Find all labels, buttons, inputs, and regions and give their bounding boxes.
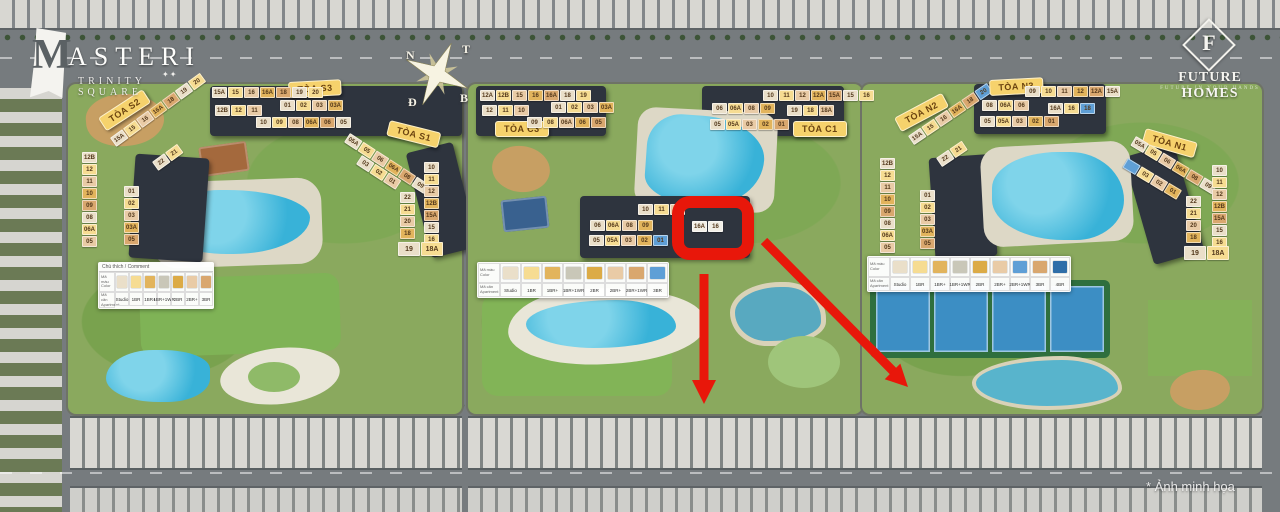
legend-swatch xyxy=(913,261,928,274)
unit-tile: 09 xyxy=(1025,86,1040,97)
unit-tile-group: 01020303A05 xyxy=(920,190,935,249)
unit-tile: 08 xyxy=(622,220,637,231)
unit-tile: 03 xyxy=(312,100,327,111)
unit-tile: 11 xyxy=(779,90,794,101)
unit-tile-group: 12B121110090806A05 xyxy=(880,158,895,253)
legend-label: 3BR xyxy=(199,292,213,306)
unit-tile: 06A xyxy=(606,220,621,231)
unit-tile-group: 16A1618 xyxy=(1048,103,1095,114)
unit-tile: 06 xyxy=(590,220,605,231)
unit-tile: 03A xyxy=(599,102,614,113)
unit-tile: 18 xyxy=(1186,232,1201,243)
unit-tile: 15A xyxy=(1105,86,1120,97)
unit-tile: 18A xyxy=(1207,246,1229,260)
unit-tile: 15 xyxy=(1212,225,1227,236)
legend-label: 2BR+ xyxy=(990,277,1010,291)
legend-label: 3BR xyxy=(647,283,668,297)
compass-label: B xyxy=(460,91,468,106)
unit-tile: 06 xyxy=(712,103,727,114)
legend-row-header-apartment: Mã căn Apartment xyxy=(99,292,115,308)
unit-tile: 19 xyxy=(398,242,420,256)
unit-tile: 01 xyxy=(1044,116,1059,127)
unit-tile: 12B xyxy=(215,105,230,116)
unit-tile: 18 xyxy=(400,228,415,239)
legend-swatch-cell xyxy=(185,272,199,292)
unit-tile: 19 xyxy=(292,87,307,98)
legend-label: 2BR+1WR xyxy=(626,283,647,297)
unit-tile: 12A xyxy=(480,90,495,101)
unit-tile-group: 0505A030201 xyxy=(589,235,668,246)
unit-tile: 12 xyxy=(1073,86,1088,97)
unit-tile: 15A xyxy=(1212,213,1227,224)
unit-tile: 11 xyxy=(424,174,439,185)
unit-tile: 06A xyxy=(559,117,574,128)
legend-swatch xyxy=(503,267,519,280)
unit-tile: 01 xyxy=(920,190,935,201)
legend-grid: Mã màu ColorMã căn ApartmentStudio1BR1BR… xyxy=(868,257,1070,291)
unit-tile: 01 xyxy=(653,235,668,246)
unit-tile: 18A xyxy=(819,105,834,116)
legend-swatch xyxy=(1013,261,1028,274)
legend-label: 1BR+ xyxy=(542,283,563,297)
unit-tile-group: 10111212A15A1516 xyxy=(763,90,874,101)
legend-swatch xyxy=(893,261,908,274)
building-label-c1: TÒA C1 xyxy=(793,121,847,137)
unit-tile: 09 xyxy=(272,117,287,128)
unit-tile: 20 xyxy=(1186,220,1201,231)
legend-row-header-color: Mã màu Color xyxy=(478,263,500,283)
unit-tile: 03 xyxy=(920,214,935,225)
unit-tile-group: 16A16 xyxy=(692,221,723,232)
unit-tile: 10 xyxy=(638,204,653,215)
unit-tile: 01 xyxy=(280,100,295,111)
unit-tile: 18 xyxy=(560,90,575,101)
unit-tile: 10 xyxy=(880,194,895,205)
unit-tile-group: 01020303A xyxy=(551,102,614,113)
unit-tile: 10 xyxy=(424,162,439,173)
unit-tile: 11 xyxy=(498,105,513,116)
legend-label: Studio xyxy=(890,277,910,291)
unit-tile-group: 10111212B15A1516 xyxy=(424,162,439,245)
unit-tile: 09 xyxy=(638,220,653,231)
legend-label: 3BR xyxy=(1030,277,1050,291)
legend-label: 1BR+1WR xyxy=(157,292,171,306)
legend-title: Chú thích / Comment xyxy=(99,263,213,272)
legend-swatch xyxy=(201,276,211,289)
unit-tile: 12 xyxy=(482,105,497,116)
legend-swatch xyxy=(608,267,624,280)
unit-tile: 15 xyxy=(228,87,243,98)
unit-tile: 15 xyxy=(843,90,858,101)
unit-tile: 09 xyxy=(880,206,895,217)
unit-tile: 09 xyxy=(82,200,97,211)
unit-tile-group: 0910111212A15A xyxy=(1025,86,1120,97)
site-plan: TÒA S215A151616A181920222112B12111009080… xyxy=(0,0,1280,512)
legend-swatch-cell xyxy=(950,257,970,277)
unit-tile: 19 xyxy=(576,90,591,101)
unit-tile: 05 xyxy=(880,242,895,253)
unit-tile: 03 xyxy=(1012,116,1027,127)
legend-swatch-cell xyxy=(626,263,647,283)
unit-tile: 12 xyxy=(670,204,685,215)
unit-tile: 19 xyxy=(787,105,802,116)
legend-swatch xyxy=(545,267,561,280)
watermark-text: * Ảnh minh họa xyxy=(1146,479,1235,494)
unit-tile-group: 0505A030201 xyxy=(980,116,1059,127)
unit-tile: 18 xyxy=(803,105,818,116)
legend-label: 4BR xyxy=(1050,277,1070,291)
unit-tile-group: 10090806A0605 xyxy=(256,117,351,128)
unit-tile: 12A xyxy=(811,90,826,101)
legend-swatch xyxy=(173,276,183,289)
unit-tile: 08 xyxy=(982,100,997,111)
unit-tile-group: 0606A0809 xyxy=(712,103,775,114)
unit-tile: 21 xyxy=(1186,208,1201,219)
unit-tile-group: 22212018 xyxy=(1186,196,1201,243)
unit-tile: 05A xyxy=(605,235,620,246)
legend-swatch-cell xyxy=(542,263,563,283)
unit-tile: 15A xyxy=(424,210,439,221)
unit-tile: 19 xyxy=(1184,246,1206,260)
unit-tile: 16 xyxy=(244,87,259,98)
unit-tile: 16A xyxy=(692,221,707,232)
unit-tile-group: 0505A030201 xyxy=(710,119,789,130)
unit-tile: 02 xyxy=(1028,116,1043,127)
legend-swatch-cell xyxy=(1030,257,1050,277)
unit-tile: 11 xyxy=(82,176,97,187)
unit-tile: 06A xyxy=(304,117,319,128)
unit-tile: 15 xyxy=(512,90,527,101)
unit-tile: 09 xyxy=(760,103,775,114)
unit-tile: 01 xyxy=(551,102,566,113)
unit-tile-group: 22212018 xyxy=(400,192,415,239)
legend-swatch-cell xyxy=(199,272,213,292)
unit-tile: 06A xyxy=(998,100,1013,111)
legend-label: 1BR xyxy=(521,283,542,297)
unit-tile: 05 xyxy=(589,235,604,246)
unit-tile: 12 xyxy=(795,90,810,101)
legend-row-header-apartment: Mã căn Apartment xyxy=(478,283,500,297)
unit-tile: 03A xyxy=(920,226,935,237)
unit-tile-group: 12A12B151616A1819 xyxy=(480,90,591,101)
legend-label: Studio xyxy=(115,292,129,306)
unit-tile: 16 xyxy=(528,90,543,101)
legend-label: 2BR+ xyxy=(185,292,199,306)
legend-swatch xyxy=(566,267,582,280)
legend-swatch xyxy=(1053,261,1068,274)
unit-tile-group: 2221 xyxy=(936,141,968,167)
unit-tile: 10 xyxy=(514,105,529,116)
legend-swatch xyxy=(187,276,197,289)
unit-tile: 16 xyxy=(859,90,874,101)
legend-label: 1BR xyxy=(129,292,143,306)
legend-swatch xyxy=(1033,261,1048,274)
compass-label: Đ xyxy=(408,95,417,110)
masteri-wordmark: ASTERI xyxy=(68,42,201,72)
unit-tile: 08 xyxy=(543,117,558,128)
masteri-logo: M ASTERI TRINITY SQUARE ✦✦ xyxy=(30,26,190,104)
unit-tile-group: 1918A xyxy=(398,242,443,256)
legend-swatch-cell xyxy=(930,257,950,277)
unit-tile: 03 xyxy=(621,235,636,246)
unit-tile: 16A xyxy=(260,87,275,98)
legend-swatch-cell xyxy=(157,272,171,292)
legend-swatch-cell xyxy=(890,257,910,277)
unit-tile: 16A xyxy=(1048,103,1063,114)
legend-swatch xyxy=(131,276,141,289)
unit-tile-group: 090806A0605 xyxy=(527,117,606,128)
legend-row-header-color: Mã màu Color xyxy=(868,257,890,277)
unit-tile: 15 xyxy=(424,222,439,233)
unit-tile: 15A xyxy=(827,90,842,101)
unit-tile: 02 xyxy=(637,235,652,246)
unit-tile: 05 xyxy=(920,238,935,249)
unit-tile: 22 xyxy=(1186,196,1201,207)
legend-swatch-cell xyxy=(1050,257,1070,277)
unit-tile: 03A xyxy=(328,100,343,111)
future-homes-logo: F FUTURE HOMES FUTURE IN YOUR HANDS xyxy=(1152,26,1268,96)
unit-tile: 02 xyxy=(124,198,139,209)
unit-tile: 02 xyxy=(920,202,935,213)
legend-right: Mã màu ColorMã căn ApartmentStudio1BR1BR… xyxy=(867,256,1071,292)
unit-tile-group: 1918A xyxy=(1184,246,1229,260)
unit-tile: 08 xyxy=(82,212,97,223)
unit-tile: 05 xyxy=(710,119,725,130)
legend-swatch-cell xyxy=(910,257,930,277)
unit-tile: 21 xyxy=(400,204,415,215)
unit-tile: 08 xyxy=(744,103,759,114)
unit-tile: 18 xyxy=(1080,103,1095,114)
unit-tile-group: 191818A xyxy=(787,105,834,116)
legend-label: 1BR+1WR xyxy=(950,277,970,291)
unit-tile: 03 xyxy=(583,102,598,113)
compass-label: T xyxy=(462,42,470,57)
unit-tile: 16A xyxy=(544,90,559,101)
unit-tile: 02 xyxy=(758,119,773,130)
masteri-initial: M xyxy=(32,34,72,76)
unit-tile: 03 xyxy=(742,119,757,130)
legend-swatch xyxy=(973,261,988,274)
compass-label: N xyxy=(406,48,415,63)
unit-tile: 02 xyxy=(296,100,311,111)
legend-label: 2BR+1WR xyxy=(1010,277,1030,291)
unit-tile: 22 xyxy=(400,192,415,203)
unit-tile: 05A xyxy=(996,116,1011,127)
legend-label: 2BR+ xyxy=(605,283,626,297)
buildings-layer: TÒA S215A151616A181920222112B12111009080… xyxy=(0,0,1280,512)
unit-tile: 01 xyxy=(1163,183,1182,200)
unit-tile: 08 xyxy=(288,117,303,128)
legend-swatch-cell xyxy=(521,263,542,283)
unit-tile: 05 xyxy=(591,117,606,128)
unit-tile-group: 01020303A xyxy=(280,100,343,111)
unit-tile: 12B xyxy=(1212,201,1227,212)
unit-tile: 12B xyxy=(82,152,97,163)
unit-tile-group: 12B121110090806A05 xyxy=(82,152,97,247)
unit-tile-group: 01020303A05 xyxy=(124,186,139,245)
future-homes-monogram: F xyxy=(1190,30,1228,56)
legend-swatch-cell xyxy=(563,263,584,283)
legend-label: 1BR xyxy=(910,277,930,291)
unit-tile-group: 15A151616A181920 xyxy=(212,87,323,98)
unit-tile: 10 xyxy=(256,117,271,128)
unit-tile: 01 xyxy=(774,119,789,130)
legend-swatch-cell xyxy=(115,272,129,292)
unit-tile: 02 xyxy=(567,102,582,113)
masteri-subtitle: TRINITY SQUARE xyxy=(78,76,190,98)
legend-swatch-cell xyxy=(143,272,157,292)
unit-tile: 03A xyxy=(124,222,139,233)
unit-tile: 12A xyxy=(1089,86,1104,97)
legend-swatch xyxy=(629,267,645,280)
unit-tile: 12B xyxy=(424,198,439,209)
unit-tile: 08 xyxy=(880,218,895,229)
unit-tile-group: 0606A0809 xyxy=(590,220,653,231)
unit-tile: 12B xyxy=(880,158,895,169)
unit-tile: 12 xyxy=(880,170,895,181)
unit-tile: 10 xyxy=(1041,86,1056,97)
legend-swatch-cell xyxy=(605,263,626,283)
legend-grid: Mã màu ColorMã căn ApartmentStudio1BR1BR… xyxy=(478,263,668,297)
unit-tile-group: 121110 xyxy=(482,105,529,116)
legend-swatch xyxy=(524,267,540,280)
legend-swatch xyxy=(587,267,603,280)
legend-row-header-apartment: Mã căn Apartment xyxy=(868,277,890,291)
unit-tile: 12 xyxy=(1212,189,1227,200)
unit-tile: 06A xyxy=(728,103,743,114)
legend-swatch-cell xyxy=(990,257,1010,277)
unit-tile: 05A xyxy=(726,119,741,130)
legend-swatch-cell xyxy=(171,272,185,292)
building-label-s1: TÒA S1 xyxy=(386,120,441,148)
unit-tile: 16 xyxy=(1064,103,1079,114)
unit-tile: 20 xyxy=(308,87,323,98)
masteri-stars-icon: ✦✦ xyxy=(162,70,177,79)
legend-center: Mã màu ColorMã căn ApartmentStudio1BR1BR… xyxy=(477,262,669,298)
legend-label: Studio xyxy=(500,283,521,297)
legend-swatch-cell xyxy=(584,263,605,283)
unit-tile: 10 xyxy=(1212,165,1227,176)
unit-tile-group: 2221 xyxy=(152,144,184,171)
unit-tile: 16 xyxy=(708,221,723,232)
legend-left: Chú thích / CommentMã màu ColorMã căn Ap… xyxy=(98,262,214,309)
future-homes-tagline: FUTURE IN YOUR HANDS xyxy=(1152,86,1268,91)
legend-label: 2BR xyxy=(584,283,605,297)
unit-tile: 15A xyxy=(212,87,227,98)
legend-swatch-cell xyxy=(647,263,668,283)
unit-tile: 11 xyxy=(1057,86,1072,97)
unit-tile: 06 xyxy=(575,117,590,128)
unit-tile: 05 xyxy=(336,117,351,128)
legend-swatch xyxy=(117,276,127,289)
legend-swatch-cell xyxy=(1010,257,1030,277)
unit-tile: 20 xyxy=(400,216,415,227)
unit-tile: 06 xyxy=(320,117,335,128)
unit-tile: 18 xyxy=(276,87,291,98)
compass-rose: N T Đ B xyxy=(394,34,480,114)
unit-tile: 06 xyxy=(1014,100,1029,111)
unit-tile: 05 xyxy=(82,236,97,247)
legend-grid: Mã màu ColorMã căn ApartmentStudio1BR1BR… xyxy=(99,272,213,308)
legend-swatch xyxy=(953,261,968,274)
unit-tile: 18A xyxy=(421,242,443,256)
unit-tile: 11 xyxy=(880,182,895,193)
legend-swatch-cell xyxy=(970,257,990,277)
unit-tile-group: 10111212B15A1516 xyxy=(1212,165,1227,248)
unit-tile: 10 xyxy=(82,188,97,199)
legend-swatch xyxy=(993,261,1008,274)
unit-tile-group: 0806A06 xyxy=(982,100,1029,111)
legend-swatch-cell xyxy=(500,263,521,283)
unit-tile: 11 xyxy=(247,105,262,116)
unit-tile: 01 xyxy=(124,186,139,197)
legend-label: 2BR xyxy=(171,292,185,306)
unit-tile-group: 12B1211 xyxy=(215,105,262,116)
unit-tile: 10 xyxy=(763,90,778,101)
unit-tile: 12B xyxy=(496,90,511,101)
legend-label: 1BR+1WR xyxy=(563,283,584,297)
legend-swatch xyxy=(650,267,666,280)
unit-tile: 05 xyxy=(124,234,139,245)
unit-tile: 12 xyxy=(424,186,439,197)
unit-tile: 05 xyxy=(980,116,995,127)
legend-swatch xyxy=(159,276,169,289)
legend-swatch xyxy=(933,261,948,274)
unit-tile-group: 101112 xyxy=(638,204,685,215)
unit-tile: 12 xyxy=(231,105,246,116)
legend-label: 2BR xyxy=(970,277,990,291)
unit-tile: 11 xyxy=(654,204,669,215)
unit-tile: 03 xyxy=(124,210,139,221)
unit-tile: 06A xyxy=(880,230,895,241)
legend-swatch-cell xyxy=(129,272,143,292)
legend-row-header-color: Mã màu Color xyxy=(99,272,115,292)
unit-tile: 06A xyxy=(82,224,97,235)
legend-swatch xyxy=(145,276,155,289)
unit-tile: 12 xyxy=(82,164,97,175)
legend-label: 1BR+ xyxy=(930,277,950,291)
unit-tile: 09 xyxy=(527,117,542,128)
unit-tile: 11 xyxy=(1212,177,1227,188)
